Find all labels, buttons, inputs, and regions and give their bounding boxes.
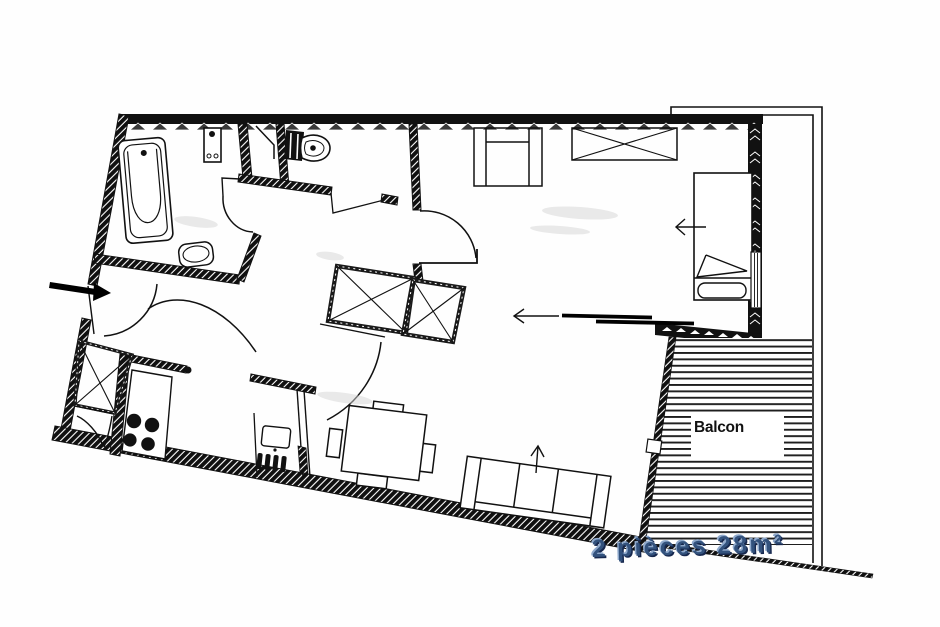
svg-text:Balcon: Balcon [694,419,744,436]
svg-text:2 pièces 28m²: 2 pièces 28m² [591,530,784,563]
